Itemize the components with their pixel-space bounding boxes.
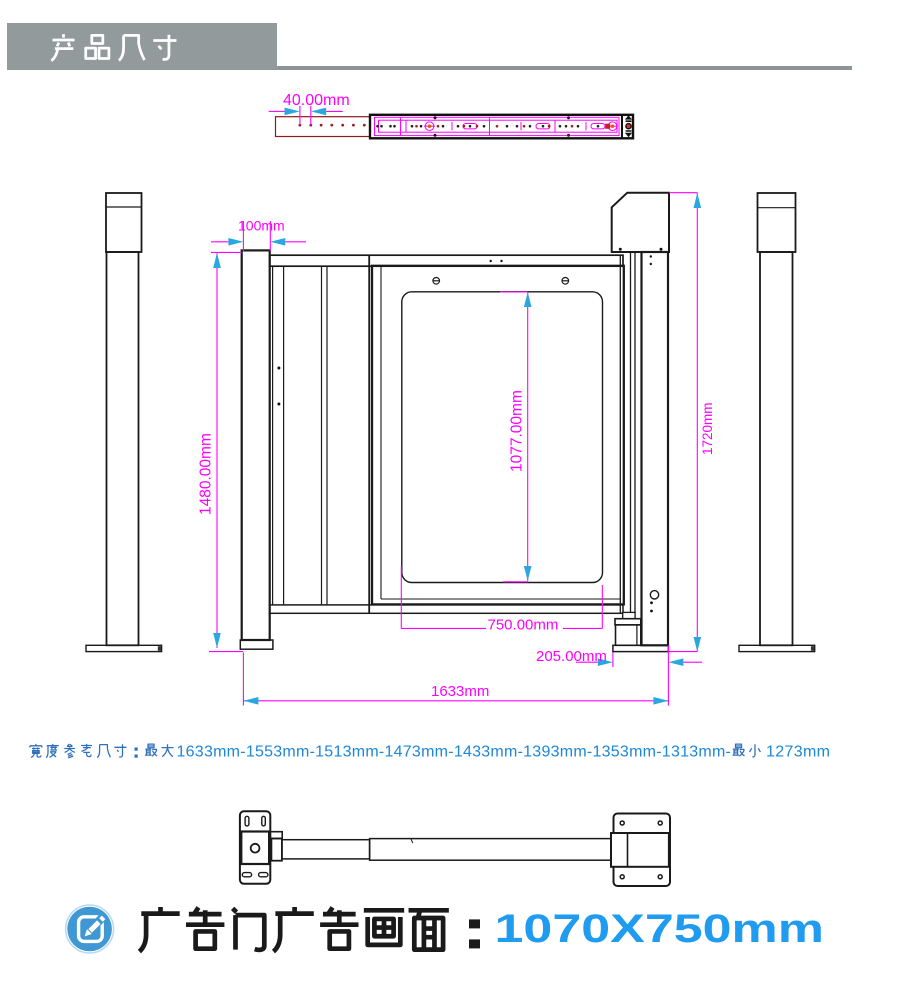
svg-text:1070X750mm: 1070X750mm: [495, 906, 825, 951]
svg-text:1633mm: 1633mm: [431, 683, 489, 700]
svg-text:750.00mm: 750.00mm: [488, 617, 559, 634]
svg-text:1720mm: 1720mm: [700, 402, 715, 455]
svg-text:40.00mm: 40.00mm: [283, 92, 350, 109]
svg-text:1077.00mm: 1077.00mm: [509, 390, 526, 472]
svg-text:100mm: 100mm: [238, 218, 285, 234]
svg-text:1480.00mm: 1480.00mm: [198, 433, 215, 515]
svg-text:1273mm: 1273mm: [766, 744, 830, 761]
svg-text:1633mm-1553mm-1513mm-1473mm-14: 1633mm-1553mm-1513mm-1473mm-1433mm-1393m…: [177, 744, 732, 761]
svg-text:205.00mm: 205.00mm: [536, 648, 607, 665]
